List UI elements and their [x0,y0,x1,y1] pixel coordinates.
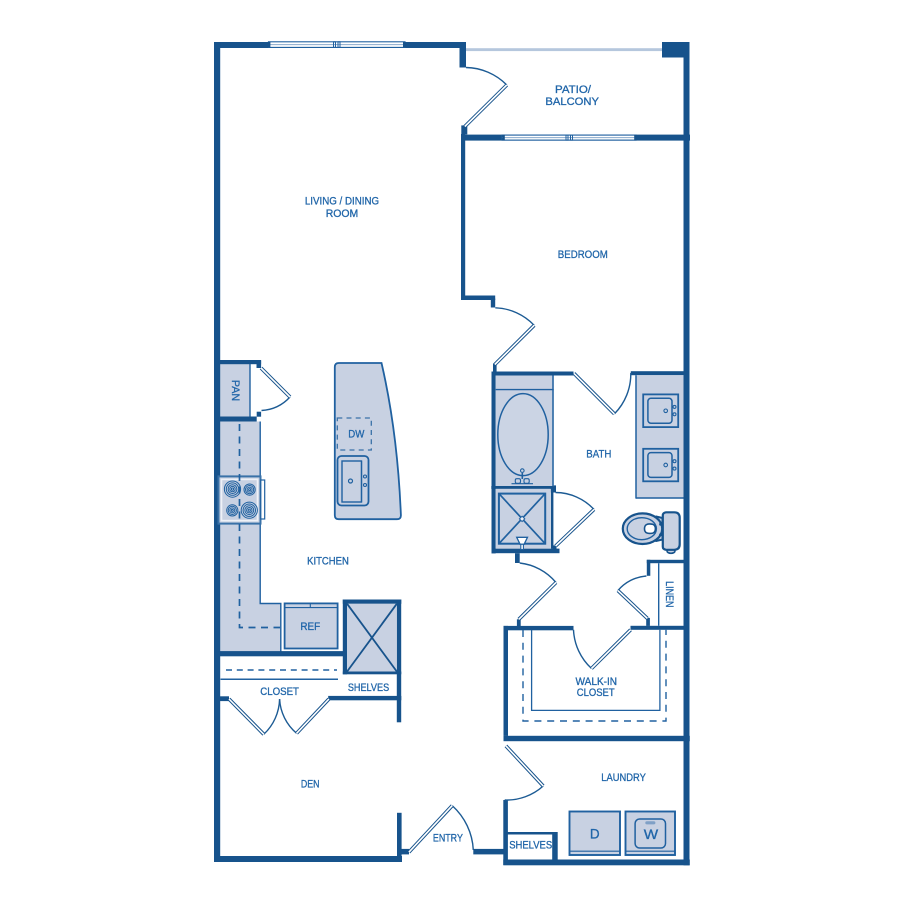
svg-text:CLOSET: CLOSET [577,687,615,699]
svg-text:DW: DW [348,429,365,441]
svg-text:DEN: DEN [301,779,320,791]
svg-text:LAUNDRY: LAUNDRY [601,772,646,784]
svg-text:BEDROOM: BEDROOM [558,249,608,261]
svg-text:ENTRY: ENTRY [433,833,463,845]
svg-text:SHELVES: SHELVES [509,840,552,852]
svg-text:D: D [590,827,600,842]
svg-text:LIVING / DINING: LIVING / DINING [305,196,379,208]
svg-text:ROOM: ROOM [326,208,359,220]
svg-text:SHELVES: SHELVES [348,682,389,694]
svg-text:CLOSET: CLOSET [260,686,299,698]
svg-text:PATIO/: PATIO/ [555,84,591,96]
svg-text:REF: REF [300,621,320,633]
svg-text:LINEN: LINEN [663,581,675,607]
svg-text:PAN: PAN [229,380,241,401]
svg-text:W: W [644,827,659,842]
svg-text:BATH: BATH [586,448,611,460]
svg-text:KITCHEN: KITCHEN [307,556,349,568]
svg-text:BALCONY: BALCONY [545,96,599,108]
